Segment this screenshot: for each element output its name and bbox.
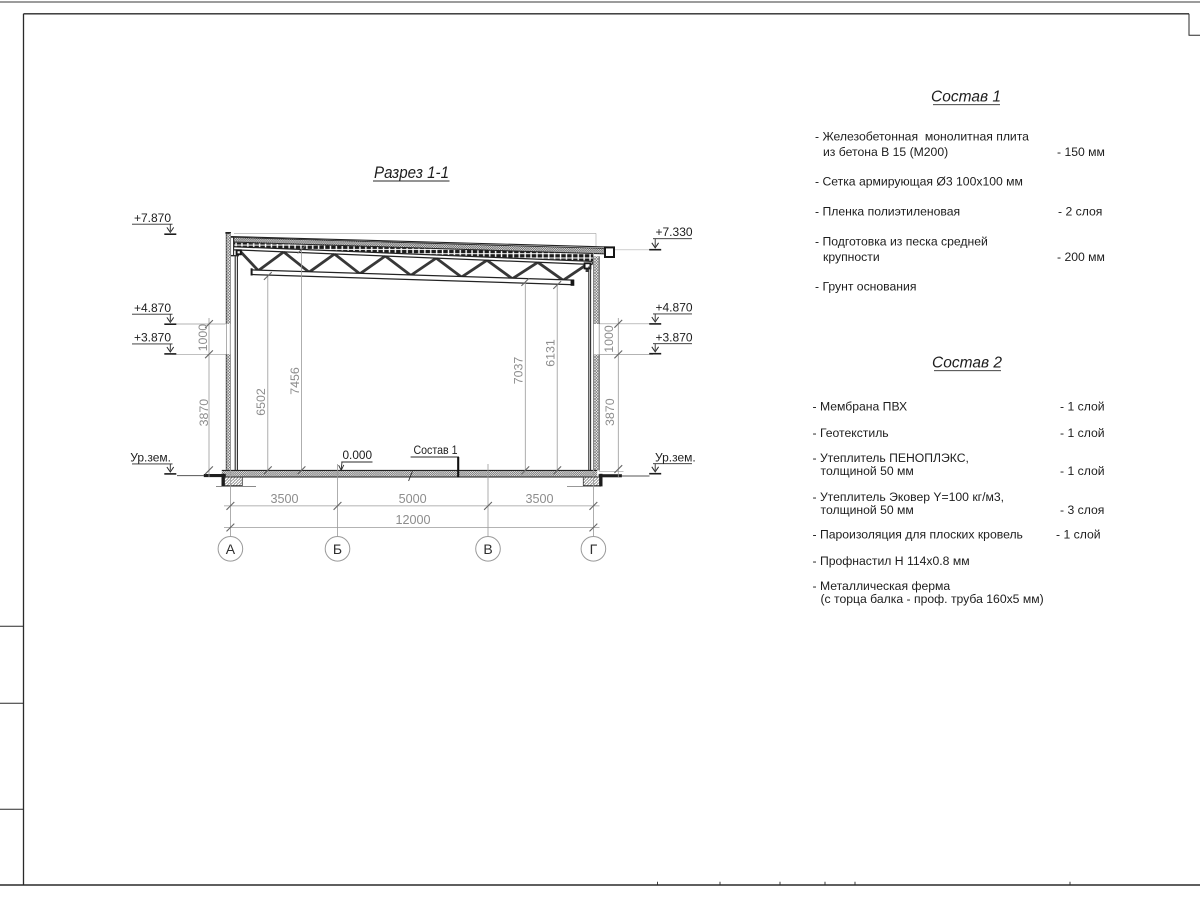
svg-text:0.000: 0.000 bbox=[343, 448, 373, 462]
svg-text:толщиной 50 мм: толщиной 50 мм bbox=[821, 464, 914, 478]
svg-text:+4.870: +4.870 bbox=[134, 301, 171, 315]
svg-text:6131: 6131 bbox=[544, 339, 558, 367]
svg-text:из бетона В 15 (М200): из бетона В 15 (М200) bbox=[823, 145, 948, 159]
svg-text:+7.330: +7.330 bbox=[656, 225, 693, 239]
svg-text:- 3 слоя: - 3 слоя bbox=[1060, 503, 1104, 517]
svg-text:+3.870: +3.870 bbox=[134, 331, 171, 345]
svg-text:- 1 слой: - 1 слой bbox=[1060, 464, 1105, 478]
svg-text:1000: 1000 bbox=[602, 325, 616, 353]
svg-text:- Подготовка из песка средней: - Подготовка из песка средней bbox=[815, 235, 988, 249]
svg-text:- Профнастил Н 114х0.8 мм: - Профнастил Н 114х0.8 мм bbox=[813, 554, 970, 568]
svg-text:(с торца балка - проф. труба 1: (с торца балка - проф. труба 160х5 мм) bbox=[821, 592, 1044, 606]
svg-text:6502: 6502 bbox=[254, 388, 268, 416]
svg-text:Состав 1: Состав 1 bbox=[414, 443, 458, 457]
svg-text:- Пароизоляция для плоских кро: - Пароизоляция для плоских кровель bbox=[813, 528, 1023, 542]
svg-text:- Геотекстиль: - Геотекстиль bbox=[813, 426, 889, 440]
svg-text:Г: Г bbox=[590, 541, 598, 557]
svg-text:В: В bbox=[483, 541, 492, 557]
svg-text:А: А bbox=[226, 541, 236, 557]
svg-text:- Мембрана ПВХ: - Мембрана ПВХ bbox=[813, 400, 908, 414]
svg-text:+3.870: +3.870 bbox=[656, 330, 693, 344]
svg-text:Состав 2: Состав 2 bbox=[932, 355, 1002, 372]
svg-text:Состав 1: Состав 1 bbox=[931, 89, 1001, 106]
svg-text:- Пленка полиэтиленовая: - Пленка полиэтиленовая bbox=[815, 205, 960, 219]
svg-text:- 1 слой: - 1 слой bbox=[1056, 528, 1101, 542]
svg-text:- 1 слой: - 1 слой bbox=[1060, 400, 1105, 414]
svg-text:Ур.зем.: Ур.зем. bbox=[655, 450, 696, 464]
svg-text:5000: 5000 bbox=[399, 492, 427, 506]
svg-text:12000: 12000 bbox=[395, 513, 430, 527]
svg-text:3870: 3870 bbox=[603, 398, 617, 426]
svg-text:Ур.зем.: Ур.зем. bbox=[130, 451, 171, 465]
svg-text:- Сетка армирующая Ø3 100х100: - Сетка армирующая Ø3 100х100 мм bbox=[815, 175, 1023, 189]
svg-text:+7.870: +7.870 bbox=[134, 211, 171, 225]
svg-text:- 1 слой: - 1 слой bbox=[1060, 426, 1105, 440]
svg-text:Разрез 1-1: Разрез 1-1 bbox=[374, 163, 449, 182]
svg-text:- 150 мм: - 150 мм bbox=[1057, 145, 1105, 159]
svg-text:- Железобетонная монолитная п: - Железобетонная монолитная плита bbox=[815, 130, 1029, 144]
svg-text:7037: 7037 bbox=[512, 357, 526, 385]
svg-text:7456: 7456 bbox=[288, 367, 302, 395]
svg-text:- Грунт основания: - Грунт основания bbox=[815, 280, 916, 294]
svg-text:3870: 3870 bbox=[197, 399, 211, 427]
svg-text:3500: 3500 bbox=[525, 492, 553, 506]
svg-text:- 2 слоя: - 2 слоя bbox=[1058, 205, 1102, 219]
svg-text:3500: 3500 bbox=[270, 492, 298, 506]
svg-text:1000: 1000 bbox=[196, 324, 210, 352]
svg-text:Б: Б bbox=[333, 541, 342, 557]
svg-text:крупности: крупности bbox=[823, 250, 880, 264]
svg-text:- 200 мм: - 200 мм bbox=[1057, 250, 1105, 264]
svg-text:толщиной 50 мм: толщиной 50 мм bbox=[821, 503, 914, 517]
svg-text:+4.870: +4.870 bbox=[656, 301, 693, 315]
